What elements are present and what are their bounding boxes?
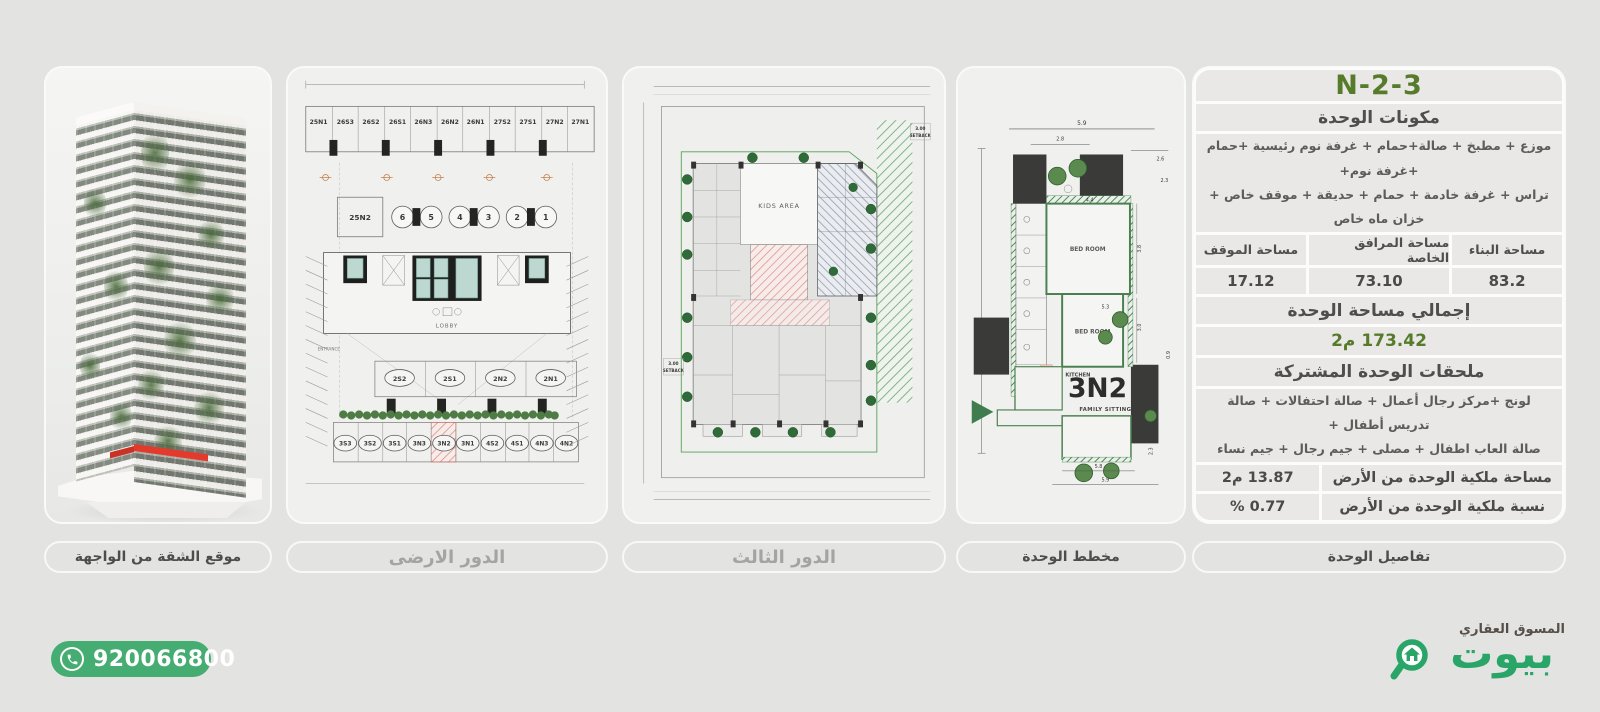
private-facilities-area-value: 73.10 — [1309, 268, 1449, 294]
entrance-arrow — [972, 400, 994, 424]
stall-label: 27S2 — [494, 119, 511, 126]
ground-floor-plan: 25N1 26S3 26S2 26S1 26N3 26N2 26N1 27S2 … — [288, 68, 606, 522]
family-sitting-label: FAMILY SITTING — [1079, 407, 1131, 413]
highlighted-unit-hatch — [818, 164, 877, 296]
stall-label: 3S2 — [364, 442, 376, 448]
caption-facade: موقع الشقة من الواجهة — [44, 541, 272, 573]
stall-label: 27S1 — [519, 119, 536, 126]
vegetation — [141, 130, 169, 176]
dim-label: 0.9 — [1166, 351, 1172, 359]
dim-label: 5.9 — [1077, 121, 1087, 127]
phone-number: 920066800 — [93, 647, 235, 672]
stall-label: 3N2 — [437, 442, 450, 448]
stall-label: 3N1 — [461, 442, 474, 448]
stall-label: 27N2 — [546, 119, 564, 126]
land-ownership-area-row: مساحة ملكية الوحدة من الأرض 13.87 م2 — [1196, 465, 1562, 491]
setback-hatch — [877, 120, 913, 402]
area-table-values-row: 83.2 73.10 17.12 — [1196, 268, 1562, 294]
stall-label: 2N2 — [493, 375, 507, 383]
stall-label: 26S3 — [337, 119, 354, 126]
stall-number: 6 — [400, 213, 406, 222]
dim-label: 5.9 — [1101, 478, 1109, 484]
lobby-label: LOBBY — [436, 324, 459, 330]
dim-label: 2.3 — [1160, 178, 1168, 184]
third-floor-panel: KIDS AREA — [622, 66, 946, 524]
stall-label: 26S2 — [362, 119, 379, 126]
stall-label: 3N3 — [413, 442, 426, 448]
brochure-page: 25N1 26S3 26S2 26S1 26N3 26N2 26N1 27S2 … — [0, 0, 1600, 712]
col-building-area: مساحة البناء — [1452, 235, 1562, 265]
dim-label: 2.8 — [1056, 137, 1064, 143]
dim-label: 2.6 — [1157, 156, 1165, 162]
total-area-header: إجمالي مساحة الوحدة — [1196, 297, 1562, 325]
dim-label: 3.0 — [1137, 324, 1143, 332]
phone-icon — [60, 647, 84, 671]
components-header: مكونات الوحدة — [1196, 104, 1562, 131]
col-parking-area: مساحة الموقف — [1196, 235, 1306, 265]
dim-label: 5.8 — [1095, 464, 1103, 470]
stall-label: 3S3 — [339, 442, 351, 448]
unit-details-panel: 3-N-2 مكونات الوحدة موزع + مطبخ + صالة+ح… — [1192, 66, 1566, 524]
land-ratio-value: 0.77 % — [1196, 494, 1319, 520]
entrance-label: ENTRANCE — [318, 346, 341, 351]
stall-label: 25N1 — [310, 119, 328, 126]
caption-third-floor: الدور الثالث — [622, 541, 946, 573]
setback-label: SETBACK — [663, 368, 685, 373]
stall-label: 3S1 — [388, 442, 400, 448]
stall-label: 4S2 — [486, 442, 498, 448]
stall-label: 26S1 — [389, 119, 406, 126]
stall-label: 26N1 — [467, 119, 485, 126]
components-text: موزع + مطبخ + صالة+حمام + غرفة نوم رئيسي… — [1196, 134, 1562, 232]
stall-label: 4S1 — [511, 442, 523, 448]
third-floor-plan: KIDS AREA — [624, 68, 944, 522]
dim-label: 3.8 — [1137, 245, 1143, 253]
caption-unit-plan: مخطط الوحدة — [956, 541, 1186, 573]
stall-label: 2S1 — [443, 375, 457, 383]
land-area-label: مساحة ملكية الوحدة من الأرض — [1322, 465, 1562, 491]
ground-floor-panel: 25N1 26S3 26S2 26S1 26N3 26N2 26N1 27S2 … — [286, 66, 608, 524]
stall-label: 4N2 — [560, 442, 573, 448]
phone-button[interactable]: 920066800 — [51, 641, 211, 677]
unit-plan: 5.9 2.8 2.6 2.3 — [958, 68, 1184, 522]
setback-label: SETBACK — [910, 133, 932, 138]
stall-number: 5 — [428, 213, 434, 222]
setback-label: 3.00 — [668, 361, 678, 366]
unit-plan-panel: 5.9 2.8 2.6 2.3 — [956, 66, 1186, 524]
setback-label: 3.00 — [915, 126, 925, 131]
area-table-header-row: مساحة البناء مساحة المرافق الخاصة مساحة … — [1196, 235, 1562, 265]
dim-label: 2.3 — [1149, 447, 1155, 455]
facade-panel — [44, 66, 272, 524]
stall-number: 1 — [543, 213, 549, 222]
stall-number: 2 — [514, 213, 520, 222]
stall-label: 4N3 — [535, 442, 548, 448]
dim-label: 5.3 — [1101, 305, 1109, 311]
unit-code-title: 3-N-2 — [1196, 70, 1562, 101]
dim-label: 4.4 — [1086, 198, 1094, 204]
details-table: 3-N-2 مكونات الوحدة موزع + مطبخ + صالة+ح… — [1196, 70, 1562, 520]
bedroom-label: BED ROOM — [1070, 247, 1106, 253]
stall-label: 26N2 — [441, 119, 459, 126]
kids-area-label: KIDS AREA — [758, 202, 800, 210]
shared-amenities-header: ملحقات الوحدة المشتركة — [1196, 358, 1562, 386]
caption-ground-floor: الدور الارضى — [286, 541, 608, 573]
stall-label: 26N3 — [414, 119, 432, 126]
stall-label: 2N1 — [544, 375, 559, 383]
shared-amenities-text: لونج +مركز رجال أعمال + صالة احتفالات + … — [1196, 389, 1562, 462]
stall-label: 2S2 — [393, 375, 407, 383]
building-area-value: 83.2 — [1452, 268, 1562, 294]
hedge-row — [339, 410, 559, 419]
stall-number: 3 — [486, 213, 492, 222]
land-ratio-label: نسبة ملكية الوحدة من الأرض — [1322, 494, 1562, 520]
stall-label: 25N2 — [349, 213, 371, 222]
land-area-value: 13.87 م2 — [1196, 465, 1319, 491]
caption-unit-details: تفاصيل الوحدة — [1192, 541, 1566, 573]
brand-wordmark: بيوت — [1438, 626, 1566, 682]
land-ownership-ratio-row: نسبة ملكية الوحدة من الأرض 0.77 % — [1196, 494, 1562, 520]
total-area-value: 173.42 م2 — [1196, 327, 1562, 355]
stall-label: 27N1 — [571, 119, 589, 126]
col-private-facilities-area: مساحة المرافق الخاصة — [1309, 235, 1449, 265]
unit-id-label: 3N2 — [1068, 373, 1127, 404]
brand-logo-icon — [1390, 636, 1436, 682]
stall-number: 4 — [457, 213, 463, 222]
parking-area-value: 17.12 — [1196, 268, 1306, 294]
